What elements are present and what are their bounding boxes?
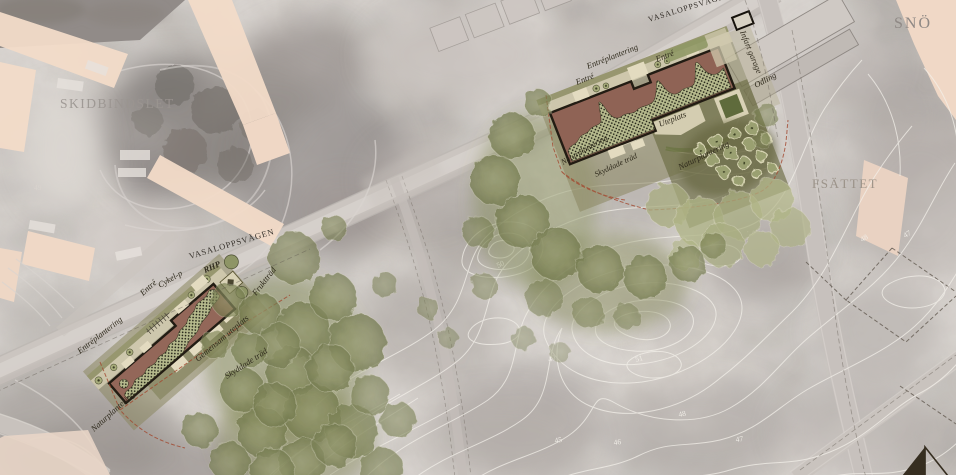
svg-text:47: 47 xyxy=(735,434,744,444)
svg-text:46: 46 xyxy=(613,437,622,447)
svg-text:FSÄTTET: FSÄTTET xyxy=(812,176,878,191)
svg-text:SNÖ: SNÖ xyxy=(894,14,932,32)
svg-text:SKIDBINDSLET: SKIDBINDSLET xyxy=(60,96,175,111)
svg-text:49: 49 xyxy=(34,183,42,192)
